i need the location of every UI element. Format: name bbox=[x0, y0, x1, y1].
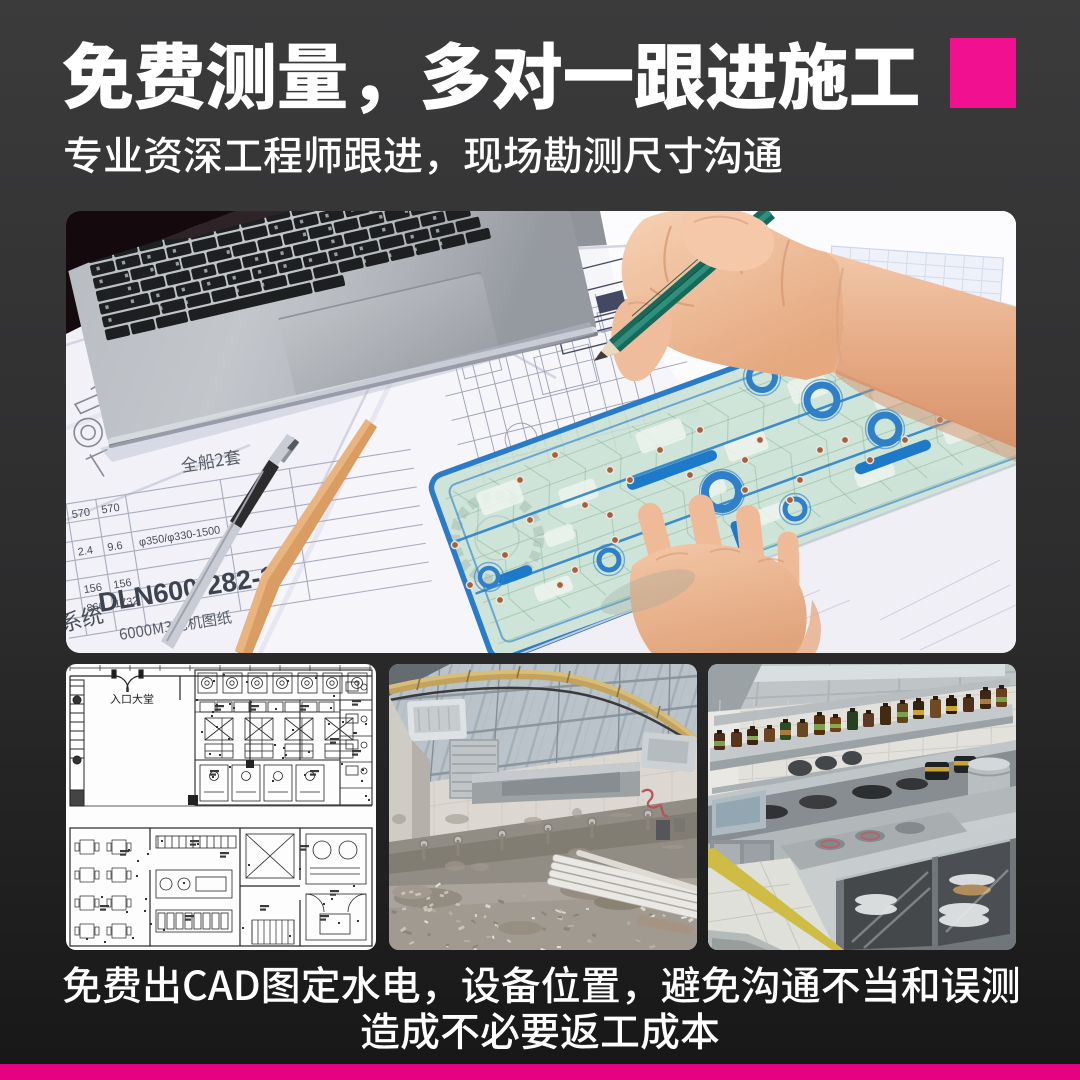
svg-text:2.4: 2.4 bbox=[77, 544, 94, 558]
svg-text:9.6: 9.6 bbox=[107, 540, 124, 554]
